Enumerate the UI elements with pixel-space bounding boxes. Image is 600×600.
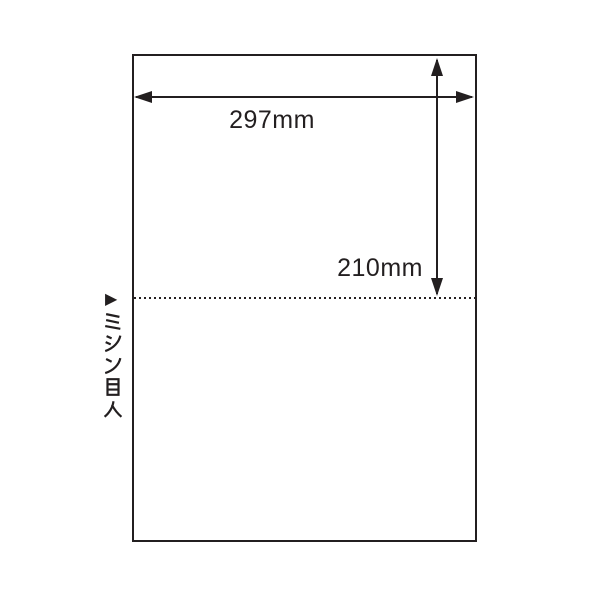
arrowhead-down-icon [431,278,443,296]
kanji-iri-glyph [102,398,124,420]
height-dimension-arrow [431,58,443,296]
width-dimension-label: 297mm [132,108,412,133]
perforation-marker-triangle-icon: ▶ [105,291,122,308]
arrowhead-right-icon [456,91,474,103]
product-diagram: 297mm 210mm ▶ ミシン目入 [0,0,600,600]
kana-shi-glyph [102,332,124,354]
kana-mi-glyph [102,310,124,332]
arrowhead-left-icon [134,91,152,103]
perforation-label: ミシン目入 [102,310,124,420]
width-dimension-arrow [134,91,474,103]
perforation-dotted-line [134,297,475,299]
kanji-me-glyph [102,376,124,398]
height-dimension-label: 210mm [223,256,423,281]
height-arrow-line [436,60,438,294]
width-arrow-line [136,96,472,98]
arrowhead-up-icon [431,58,443,76]
kana-n-glyph [102,354,124,376]
